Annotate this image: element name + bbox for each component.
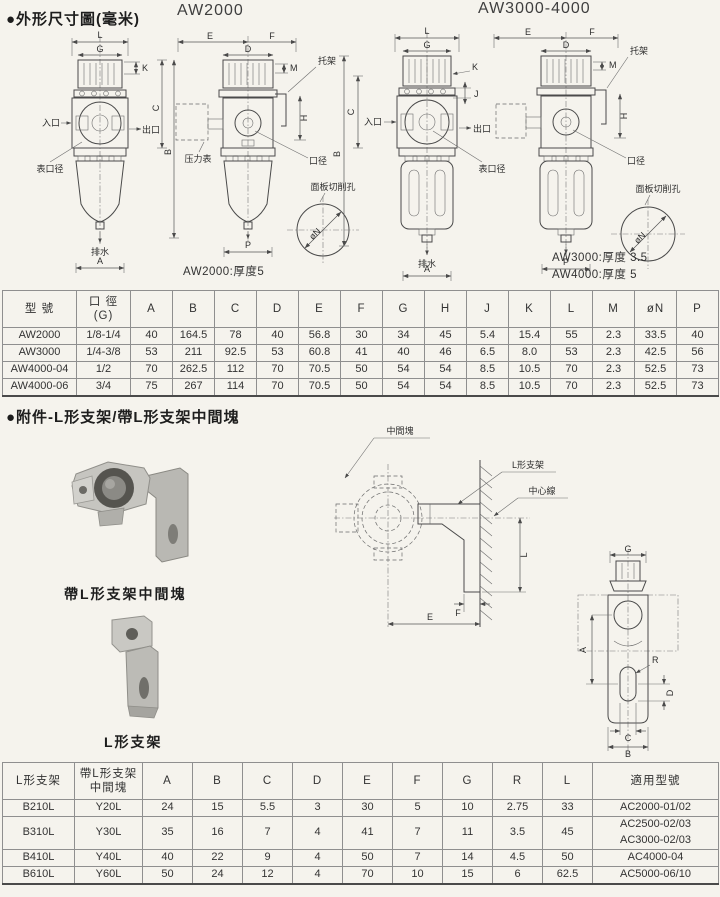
table-cell: 54 xyxy=(383,362,425,379)
dim-label-f: F xyxy=(269,31,275,41)
table-cell: 8.0 xyxy=(509,345,551,362)
table-cell: 3 xyxy=(293,800,343,817)
table-cell: 10.5 xyxy=(509,379,551,396)
dim-label-k: K xyxy=(142,63,148,73)
table-row: AW20001/8-1/440164.5784056.83034455.415.… xyxy=(3,328,719,345)
table-cell: 45 xyxy=(425,328,467,345)
dim-label-g: G xyxy=(423,40,430,50)
table-row: B310LY30L351674417113.545AC2500-02/03 AC… xyxy=(3,817,719,850)
dim-label-f: F xyxy=(589,27,595,37)
table-cell: 7 xyxy=(393,817,443,850)
column-header: H xyxy=(425,291,467,328)
note-aw4000-thickness: AW4000:厚度 5 xyxy=(552,266,637,282)
table-cell: B410L xyxy=(3,849,75,866)
table-cell: 78 xyxy=(215,328,257,345)
table-cell: 46 xyxy=(425,345,467,362)
table-cell: B610L xyxy=(3,866,75,883)
table-cell: 50 xyxy=(341,362,383,379)
column-header: L xyxy=(551,291,593,328)
table-cell: 2.3 xyxy=(593,345,635,362)
note-aw3000-thickness: AW3000:厚度 3.5 xyxy=(552,249,648,265)
table-cell: 45 xyxy=(543,817,593,850)
table-cell: 1/2 xyxy=(77,362,131,379)
table-cell: 12 xyxy=(243,866,293,883)
dim-label-d: D xyxy=(563,40,570,50)
table-cell: 53 xyxy=(131,345,173,362)
column-header: A xyxy=(131,291,173,328)
bracket-front-diagram: G A R D C B xyxy=(548,545,708,760)
table-cell: AW2000 xyxy=(3,328,77,345)
table-cell: AW4000-06 xyxy=(3,379,77,396)
column-header: M xyxy=(593,291,635,328)
table-cell: 52.5 xyxy=(635,379,677,396)
port-label: 口径 xyxy=(309,155,327,166)
table-cell: 6.5 xyxy=(467,345,509,362)
table-cell: 267 xyxy=(173,379,215,396)
table-cell: 70 xyxy=(551,362,593,379)
column-header: C xyxy=(215,291,257,328)
table-cell: AC4000-04 xyxy=(593,849,719,866)
table-row: AW4000-041/270262.51127070.55054548.510.… xyxy=(3,362,719,379)
table-cell: 5.5 xyxy=(243,800,293,817)
column-header: J xyxy=(467,291,509,328)
table-cell: 2.3 xyxy=(593,362,635,379)
table-cell: 54 xyxy=(425,379,467,396)
table-cell: 6 xyxy=(493,866,543,883)
table-cell: 40 xyxy=(143,849,193,866)
dim-label-c: C xyxy=(625,733,632,743)
table-cell: 3.5 xyxy=(493,817,543,850)
dim-label-a: A xyxy=(578,647,588,653)
dim-label-r: R xyxy=(652,655,659,665)
table-cell: 40 xyxy=(677,328,719,345)
table-cell: 164.5 xyxy=(173,328,215,345)
table-cell: 54 xyxy=(383,379,425,396)
table-cell: AC5000-06/10 xyxy=(593,866,719,883)
l-bracket-caption: L形支架 xyxy=(104,732,163,752)
column-header: D xyxy=(257,291,299,328)
dim-label-d: D xyxy=(245,44,252,54)
dim-label-e: E xyxy=(207,31,213,41)
table-cell: Y20L xyxy=(75,800,143,817)
table-cell: 10 xyxy=(393,866,443,883)
table-cell: 14 xyxy=(443,849,493,866)
table-cell: 52.5 xyxy=(635,362,677,379)
table-cell: 11 xyxy=(443,817,493,850)
inlet-label: 入口 xyxy=(42,118,60,128)
table-row: B410LY40L402294507144.550AC4000-04 xyxy=(3,849,719,866)
dim-label-d: D xyxy=(665,689,675,696)
bracket-table: L形支架帶L形支架 中間塊ABCDEFGRL適用型號B210LY20L24155… xyxy=(2,762,719,885)
table-cell: 10 xyxy=(443,800,493,817)
dim-label-b: B xyxy=(625,749,631,759)
column-header: 適用型號 xyxy=(593,763,719,800)
table-cell: 15 xyxy=(193,800,243,817)
table-cell: 9 xyxy=(243,849,293,866)
dim-label-m: M xyxy=(609,60,617,70)
table-cell: 56 xyxy=(677,345,719,362)
table-cell: 5.4 xyxy=(467,328,509,345)
port-label: 口径 xyxy=(627,155,645,166)
table-cell: 2.3 xyxy=(593,379,635,396)
table-cell: 70 xyxy=(257,362,299,379)
table-cell: 75 xyxy=(131,379,173,396)
table-cell: 41 xyxy=(341,345,383,362)
table-cell: B310L xyxy=(3,817,75,850)
dim-label-b: B xyxy=(332,151,342,157)
table-cell: 4.5 xyxy=(493,849,543,866)
table-cell: 56.8 xyxy=(299,328,341,345)
model-title-aw3000-4000: AW3000-4000 xyxy=(478,0,591,18)
section-bracket-heading: ●附件-L形支架/帶L形支架中間塊 xyxy=(6,406,240,427)
table-cell: 60.8 xyxy=(299,345,341,362)
table-cell: 73 xyxy=(677,379,719,396)
column-header: P xyxy=(677,291,719,328)
table-cell: 53 xyxy=(257,345,299,362)
table-cell: 8.5 xyxy=(467,362,509,379)
table-cell: 4 xyxy=(293,866,343,883)
dim-label-g: G xyxy=(624,544,631,554)
table-cell: 92.5 xyxy=(215,345,257,362)
dim-label-m: M xyxy=(290,63,298,73)
dim-label-a: A xyxy=(97,256,103,266)
table-cell: 50 xyxy=(343,849,393,866)
bracket-label: 托架 xyxy=(630,45,648,56)
dim-label-e: E xyxy=(427,612,433,622)
l-bracket-photo xyxy=(92,612,187,724)
table-cell: 40 xyxy=(131,328,173,345)
table-row: AW4000-063/4752671147070.55054548.510.57… xyxy=(3,379,719,396)
model-title-aw2000: AW2000 xyxy=(177,2,244,20)
table-cell: 4 xyxy=(293,817,343,850)
table-cell: B210L xyxy=(3,800,75,817)
table-row: B210LY20L24155.53305102.7533AC2000-01/02 xyxy=(3,800,719,817)
table-cell: 70.5 xyxy=(299,379,341,396)
dim-label-l: L xyxy=(519,552,529,557)
column-header: 口 徑 (G) xyxy=(77,291,131,328)
table-row: AW30001/4-3/85321192.55360.84140466.58.0… xyxy=(3,345,719,362)
table-cell: 53 xyxy=(551,345,593,362)
column-header: G xyxy=(383,291,425,328)
table-cell: 22 xyxy=(193,849,243,866)
column-header: 型 號 xyxy=(3,291,77,328)
table-cell: 2.3 xyxy=(593,328,635,345)
table-cell: 41 xyxy=(343,817,393,850)
table-cell: 114 xyxy=(215,379,257,396)
table-row: B610LY60L5024124701015662.5AC5000-06/10 xyxy=(3,866,719,883)
dim-label-p: P xyxy=(245,240,251,250)
table-cell: 7 xyxy=(393,849,443,866)
dim-label-c: C xyxy=(346,108,356,115)
dim-label-f: F xyxy=(455,608,461,618)
table-cell: AC2000-01/02 xyxy=(593,800,719,817)
table-cell: 16 xyxy=(193,817,243,850)
table-cell: 10.5 xyxy=(509,362,551,379)
column-header: E xyxy=(299,291,341,328)
column-header: C xyxy=(243,763,293,800)
table-cell: 62.5 xyxy=(543,866,593,883)
column-header: 帶L形支架 中間塊 xyxy=(75,763,143,800)
dim-label-l: L xyxy=(97,30,102,40)
column-header: L形支架 xyxy=(3,763,75,800)
column-header: E xyxy=(343,763,393,800)
table-cell: 70 xyxy=(257,379,299,396)
table-cell: 50 xyxy=(143,866,193,883)
table-cell: AW4000-04 xyxy=(3,362,77,379)
dim-label-h: H xyxy=(619,113,629,120)
table-cell: 24 xyxy=(193,866,243,883)
table-cell: 15 xyxy=(443,866,493,883)
table-cell: 30 xyxy=(343,800,393,817)
l-bracket-callout-label: L形支架 xyxy=(512,459,544,470)
phi-n-label: øN xyxy=(307,226,323,242)
table-cell: 35 xyxy=(143,817,193,850)
table-cell: 50 xyxy=(341,379,383,396)
column-header: B xyxy=(193,763,243,800)
table-cell: 70.5 xyxy=(299,362,341,379)
table-cell: 8.5 xyxy=(467,379,509,396)
phi-n-label: øN xyxy=(632,230,648,246)
table-cell: AC2500-02/03 AC3000-02/03 xyxy=(593,817,719,850)
table-cell: 50 xyxy=(543,849,593,866)
bracket-with-block-photo xyxy=(58,438,203,580)
table-cell: 7 xyxy=(243,817,293,850)
table-cell: 34 xyxy=(383,328,425,345)
table-cell: 24 xyxy=(143,800,193,817)
table-cell: 5 xyxy=(393,800,443,817)
table-cell: 1/8-1/4 xyxy=(77,328,131,345)
table-cell: 15.4 xyxy=(509,328,551,345)
bracket-with-block-caption: 帶L形支架中間塊 xyxy=(64,584,187,604)
note-aw2000-thickness: AW2000:厚度5 xyxy=(183,263,264,279)
table-cell: 211 xyxy=(173,345,215,362)
column-header: K xyxy=(509,291,551,328)
column-header: L xyxy=(543,763,593,800)
table-cell: Y60L xyxy=(75,866,143,883)
column-header: F xyxy=(393,763,443,800)
table-cell: 30 xyxy=(341,328,383,345)
dim-label-h: H xyxy=(299,115,309,122)
section-dims-heading: ●外形尺寸圖(毫米) xyxy=(6,8,140,29)
table-cell: Y30L xyxy=(75,817,143,850)
table-cell: 262.5 xyxy=(173,362,215,379)
gauge-port-label: 表口径 xyxy=(36,163,63,174)
table-cell: 70 xyxy=(551,379,593,396)
catalog-page: ●外形尺寸圖(毫米) AW2000 AW3000-4000 L G K 入口 出… xyxy=(0,0,720,897)
column-header: A xyxy=(143,763,193,800)
column-header: B xyxy=(173,291,215,328)
table-cell: 40 xyxy=(257,328,299,345)
table-cell: 4 xyxy=(293,849,343,866)
panel-cutout-label: 面板切削孔 xyxy=(635,183,680,194)
table-cell: 73 xyxy=(677,362,719,379)
table-cell: 2.75 xyxy=(493,800,543,817)
outlet-label: 出口 xyxy=(142,124,160,135)
table-cell: 3/4 xyxy=(77,379,131,396)
dim-label-a: A xyxy=(424,264,430,274)
column-header: øN xyxy=(635,291,677,328)
column-header: F xyxy=(341,291,383,328)
inlet-label: 入口 xyxy=(364,117,382,127)
middle-block-label: 中間塊 xyxy=(386,425,413,436)
center-line-label: 中心線 xyxy=(528,485,555,496)
pressure-gauge-label: 压力表 xyxy=(184,153,211,164)
table-cell: 54 xyxy=(425,362,467,379)
table-cell: 112 xyxy=(215,362,257,379)
table-cell: 33.5 xyxy=(635,328,677,345)
table-cell: Y40L xyxy=(75,849,143,866)
table-cell: 70 xyxy=(131,362,173,379)
dimensions-table: 型 號口 徑 (G)ABCDEFGHJKLMøNPAW20001/8-1/440… xyxy=(2,290,719,397)
dim-label-g: G xyxy=(96,44,103,54)
table-cell: AW3000 xyxy=(3,345,77,362)
dim-label-l: L xyxy=(424,26,429,36)
table-cell: 42.5 xyxy=(635,345,677,362)
column-header: R xyxy=(493,763,543,800)
column-header: G xyxy=(443,763,493,800)
column-header: D xyxy=(293,763,343,800)
table-cell: 1/4-3/8 xyxy=(77,345,131,362)
table-cell: 70 xyxy=(343,866,393,883)
table-cell: 33 xyxy=(543,800,593,817)
dim-label-e: E xyxy=(525,27,531,37)
table-cell: 40 xyxy=(383,345,425,362)
table-cell: 55 xyxy=(551,328,593,345)
